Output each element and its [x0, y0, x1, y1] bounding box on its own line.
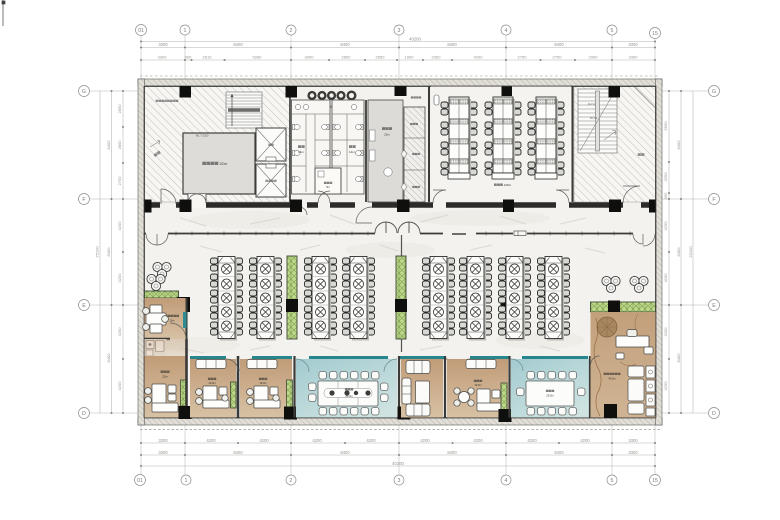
svg-text:8400: 8400: [106, 140, 111, 150]
svg-text:45.5m: 45.5m: [608, 377, 615, 381]
svg-text:8400: 8400: [676, 247, 681, 257]
svg-text:1: 1: [184, 28, 187, 34]
svg-text:15: 15: [652, 478, 658, 484]
svg-text:8400: 8400: [447, 450, 457, 455]
svg-text:8400: 8400: [106, 353, 111, 363]
svg-text:01: 01: [137, 478, 143, 484]
svg-text:4200: 4200: [663, 221, 668, 231]
svg-text:2750: 2750: [518, 55, 528, 60]
svg-text:E: E: [712, 303, 716, 309]
svg-text:40200: 40200: [409, 37, 421, 42]
svg-text:3000: 3000: [305, 55, 315, 60]
svg-text:8400: 8400: [106, 247, 111, 257]
svg-text:2750: 2750: [553, 55, 563, 60]
svg-text:D: D: [82, 411, 86, 417]
svg-text:8400: 8400: [554, 42, 564, 47]
svg-text:4200: 4200: [117, 327, 122, 337]
svg-text:5280: 5280: [253, 55, 263, 60]
svg-text:2550: 2550: [376, 55, 386, 60]
svg-text:25m: 25m: [384, 133, 390, 137]
svg-text:32m: 32m: [219, 161, 227, 166]
svg-text:108m: 108m: [504, 183, 512, 187]
svg-text:E: E: [82, 303, 86, 309]
svg-text:8400: 8400: [233, 450, 243, 455]
svg-text:M1,7-1020: M1,7-1020: [196, 134, 209, 138]
svg-text:1: 1: [185, 478, 188, 484]
svg-text:2615: 2615: [203, 55, 213, 60]
svg-text:4200: 4200: [312, 438, 322, 443]
svg-text:25200: 25200: [688, 246, 693, 258]
svg-text:3300: 3300: [158, 55, 168, 60]
svg-text:4200: 4200: [663, 381, 668, 391]
svg-text:3250: 3250: [663, 172, 668, 182]
svg-text:4200: 4200: [527, 438, 537, 443]
svg-text:2800: 2800: [117, 140, 122, 150]
svg-text:01: 01: [138, 28, 144, 34]
svg-text:D: D: [712, 411, 716, 417]
svg-text:2850: 2850: [342, 55, 352, 60]
svg-text:Rt.7-2: Rt.7-2: [590, 116, 598, 120]
svg-text:3300: 3300: [158, 438, 168, 443]
svg-text:29.3m: 29.3m: [546, 394, 553, 398]
svg-text:4: 4: [505, 478, 508, 484]
svg-text:3300: 3300: [628, 438, 638, 443]
svg-text:3300: 3300: [628, 450, 638, 455]
svg-text:2: 2: [290, 478, 293, 484]
svg-text:10m: 10m: [169, 319, 174, 323]
svg-text:2850: 2850: [117, 104, 122, 114]
svg-text:19.3m: 19.3m: [259, 381, 266, 385]
svg-text:4200: 4200: [663, 327, 668, 337]
svg-text:500: 500: [185, 55, 192, 60]
svg-text:Kt.7-2: Kt.7-2: [588, 102, 595, 106]
svg-text:8400: 8400: [554, 450, 564, 455]
svg-text:5: 5: [611, 28, 614, 34]
svg-text:15: 15: [652, 31, 658, 37]
svg-text:25200: 25200: [95, 246, 100, 258]
svg-text:4200: 4200: [473, 438, 483, 443]
svg-text:8400: 8400: [340, 450, 350, 455]
svg-text:4200: 4200: [663, 273, 668, 283]
svg-text:4200: 4200: [117, 273, 122, 283]
svg-text:G: G: [82, 89, 86, 95]
svg-text:3300: 3300: [628, 42, 638, 47]
svg-text:22m: 22m: [162, 375, 168, 379]
svg-text:29.3m: 29.3m: [345, 394, 352, 398]
svg-text:8400: 8400: [340, 42, 350, 47]
svg-text:1900: 1900: [405, 55, 415, 60]
svg-text:19.3m: 19.3m: [208, 381, 215, 385]
svg-text:3: 3: [398, 28, 401, 34]
svg-text:4200: 4200: [117, 381, 122, 391]
svg-text:2750: 2750: [117, 176, 122, 186]
svg-text:4200: 4200: [474, 55, 484, 60]
svg-text:2: 2: [290, 28, 293, 34]
svg-text:4200: 4200: [580, 438, 590, 443]
svg-text:3300: 3300: [158, 42, 168, 47]
svg-text:5: 5: [611, 478, 614, 484]
svg-text:8400: 8400: [676, 140, 681, 150]
svg-text:4200: 4200: [117, 221, 122, 231]
svg-text:4200: 4200: [420, 438, 430, 443]
svg-text:19.3m: 19.3m: [474, 383, 481, 387]
svg-text:14m: 14m: [349, 150, 355, 154]
svg-text:4200: 4200: [206, 438, 216, 443]
svg-text:4: 4: [505, 28, 508, 34]
svg-text:8400: 8400: [447, 42, 457, 47]
svg-text:5m: 5m: [326, 185, 330, 189]
svg-text:2300: 2300: [432, 55, 442, 60]
svg-text:3: 3: [398, 478, 401, 484]
svg-text:16m: 16m: [298, 150, 304, 154]
svg-text:8400: 8400: [676, 353, 681, 363]
svg-text:8400: 8400: [233, 42, 243, 47]
svg-text:5650: 5650: [663, 121, 668, 131]
svg-text:3300: 3300: [629, 55, 639, 60]
svg-text:4200: 4200: [259, 438, 269, 443]
svg-text:40200: 40200: [392, 461, 404, 466]
svg-text:G: G: [712, 89, 716, 95]
svg-text:550: 550: [663, 192, 668, 199]
svg-text:3300: 3300: [158, 450, 168, 455]
svg-text:4200: 4200: [366, 438, 376, 443]
svg-text:2900: 2900: [589, 55, 599, 60]
